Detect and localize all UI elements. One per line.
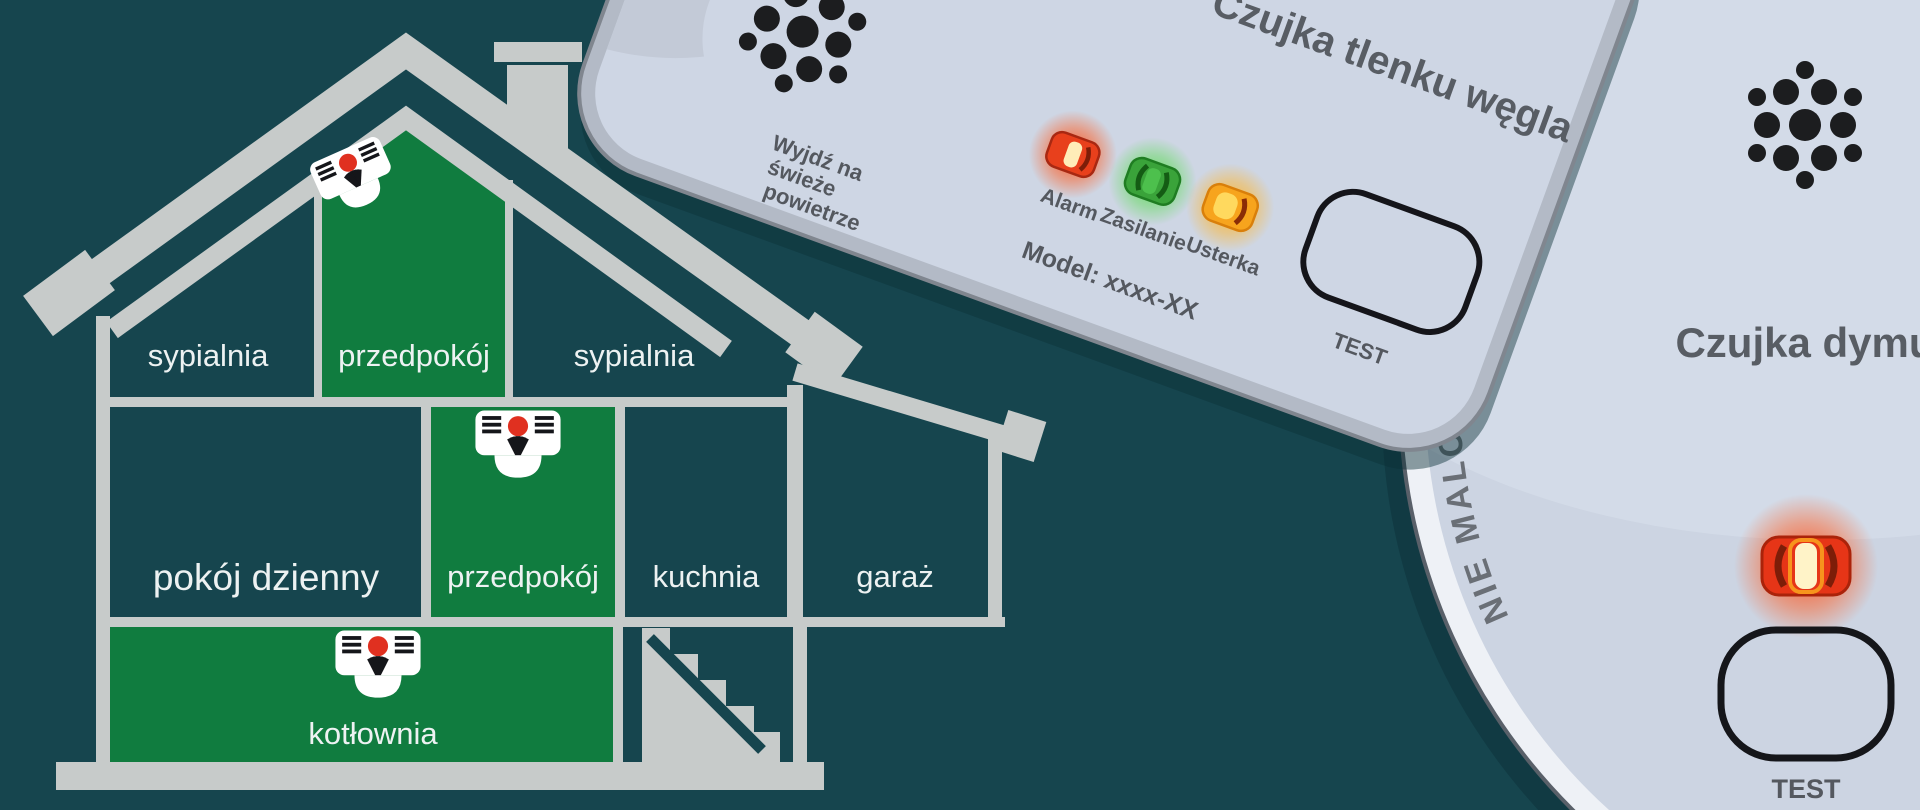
middle-wall-left: [421, 407, 431, 619]
room-label-bedroom-right: sypialnia: [574, 338, 695, 373]
smoke-test-label: TEST: [1771, 774, 1841, 804]
basement-wall: [613, 627, 623, 764]
detectors-infographic-canvas: NIE MALOWAĆ Czujka dymu TEST Czujka tlen…: [0, 0, 1920, 810]
room-label-garage: garaż: [856, 559, 934, 594]
attic-floor: [96, 397, 803, 407]
room-label-living-room: pokój dzienny: [153, 557, 380, 598]
smoke-alarm-led: [1734, 494, 1878, 638]
garage-eave: [1002, 430, 1040, 442]
attic-wall-right: [505, 180, 513, 399]
chimney-cap: [494, 42, 582, 62]
smoke-detector-title: Czujka dymu: [1675, 319, 1920, 366]
middle-floor: [96, 617, 1005, 627]
room-label-bedroom-left: sypialnia: [148, 338, 269, 373]
room-label-kitchen: kuchnia: [653, 559, 761, 594]
room-label-hallway-middle: przedpokój: [447, 559, 599, 594]
middle-wall-right: [615, 407, 625, 619]
outer-wall-right-low: [793, 627, 807, 775]
roof-eave-right: [800, 332, 848, 367]
garage-wall-right: [988, 436, 1002, 627]
ground-bar: [56, 762, 824, 790]
house-wall-right: [787, 385, 803, 627]
infographic: NIE MALOWAĆ Czujka dymu TEST Czujka tlen…: [0, 0, 1920, 810]
room-label-boiler-room: kotłownia: [308, 716, 438, 751]
attic-wall-left: [314, 168, 322, 399]
outer-wall-left: [96, 316, 110, 775]
room-label-hallway-attic: przedpokój: [338, 338, 490, 373]
